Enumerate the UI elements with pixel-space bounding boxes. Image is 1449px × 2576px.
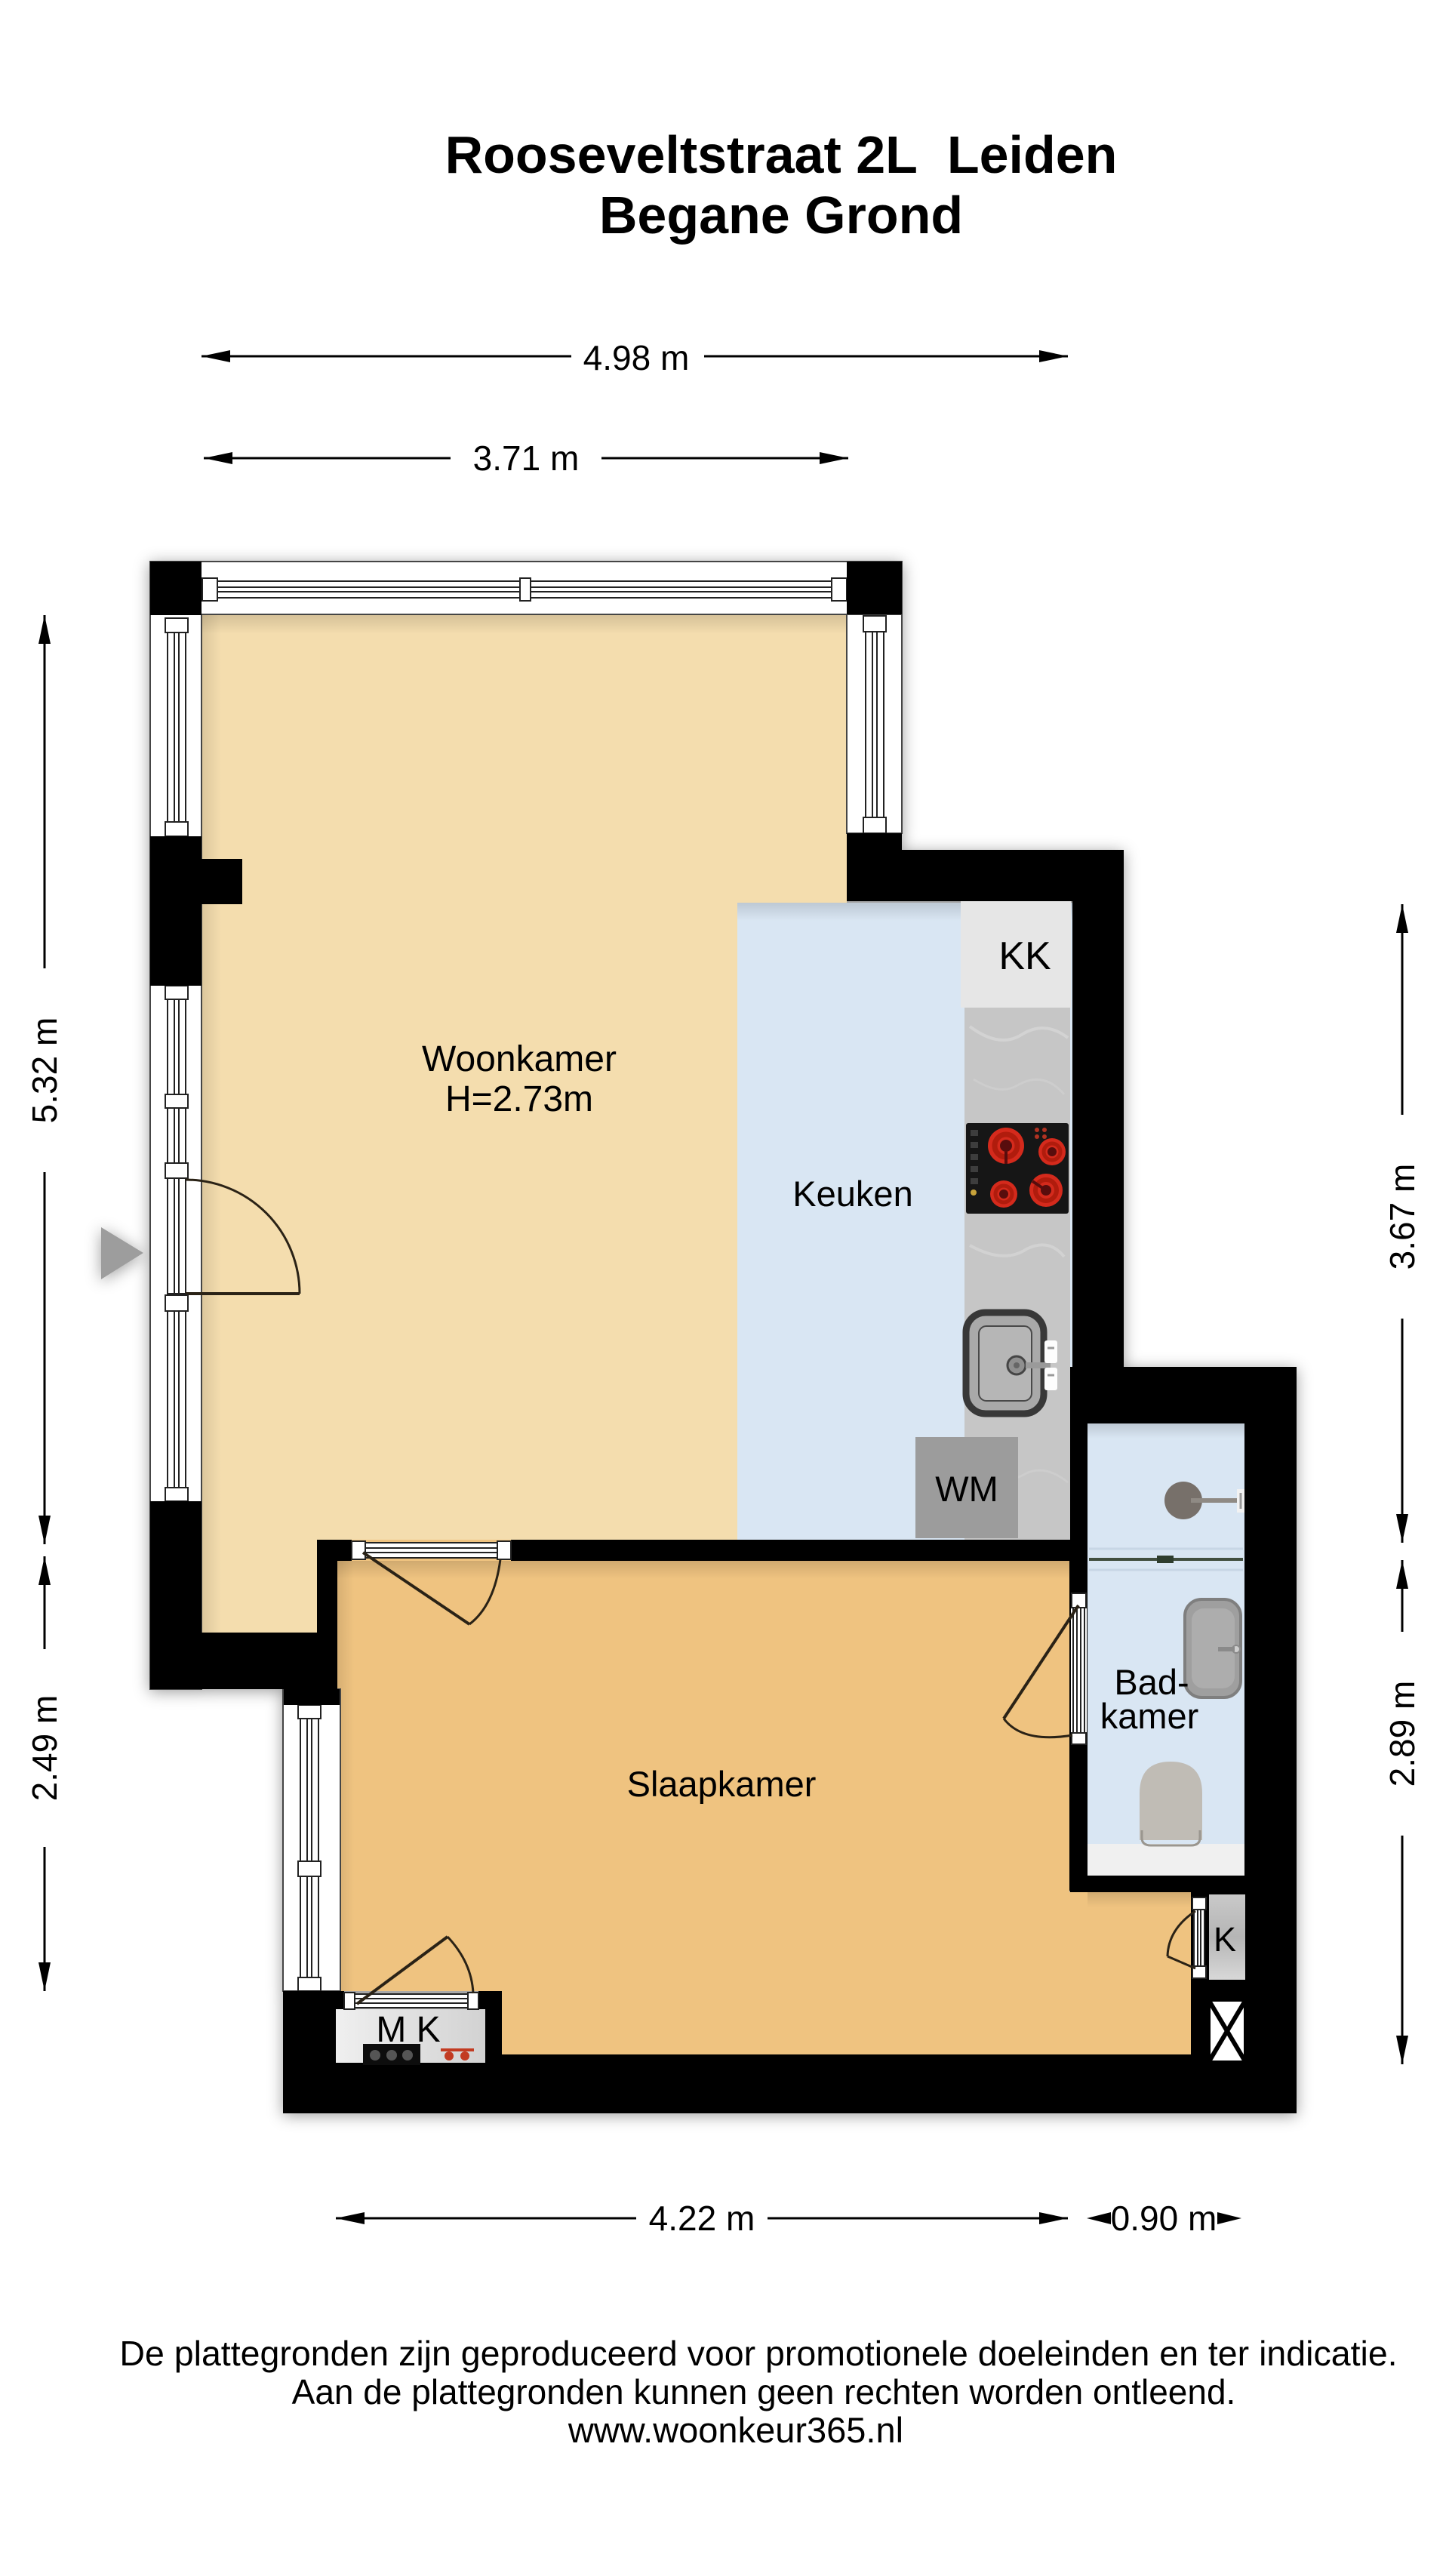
svg-text:WM: WM xyxy=(935,1469,998,1509)
svg-text:KK: KK xyxy=(998,934,1051,978)
svg-text:Slaapkamer: Slaapkamer xyxy=(627,1764,817,1804)
svg-text:3.71 m: 3.71 m xyxy=(473,439,580,478)
svg-text:5.32 m: 5.32 m xyxy=(25,1017,64,1124)
svg-text:H=2.73m: H=2.73m xyxy=(445,1079,593,1119)
svg-text:4.98 m: 4.98 m xyxy=(583,338,690,377)
svg-text:2.89 m: 2.89 m xyxy=(1383,1681,1422,1787)
svg-text:kamer: kamer xyxy=(1100,1696,1199,1736)
svg-text:K: K xyxy=(1214,1920,1236,1959)
svg-text:www.woonkeur365.nl: www.woonkeur365.nl xyxy=(568,2410,903,2450)
svg-text:De plattegronden zijn geproduc: De plattegronden zijn geproduceerd voor … xyxy=(119,2334,1397,2373)
svg-text:4.22 m: 4.22 m xyxy=(649,2199,755,2238)
svg-text:0.90 m: 0.90 m xyxy=(1111,2199,1217,2238)
svg-text:3.67 m: 3.67 m xyxy=(1383,1164,1422,1270)
svg-text:Rooseveltstraat 2L Leiden: Rooseveltstraat 2L Leiden xyxy=(445,125,1118,184)
svg-text:Begane Grond: Begane Grond xyxy=(599,186,963,245)
svg-text:M K: M K xyxy=(376,2010,440,2050)
svg-text:Keuken: Keuken xyxy=(792,1174,912,1214)
svg-text:2.49 m: 2.49 m xyxy=(25,1695,64,1802)
svg-text:Aan de plattegronden kunnen ge: Aan de plattegronden kunnen geen rechten… xyxy=(292,2372,1236,2411)
svg-text:Woonkamer: Woonkamer xyxy=(422,1039,617,1079)
